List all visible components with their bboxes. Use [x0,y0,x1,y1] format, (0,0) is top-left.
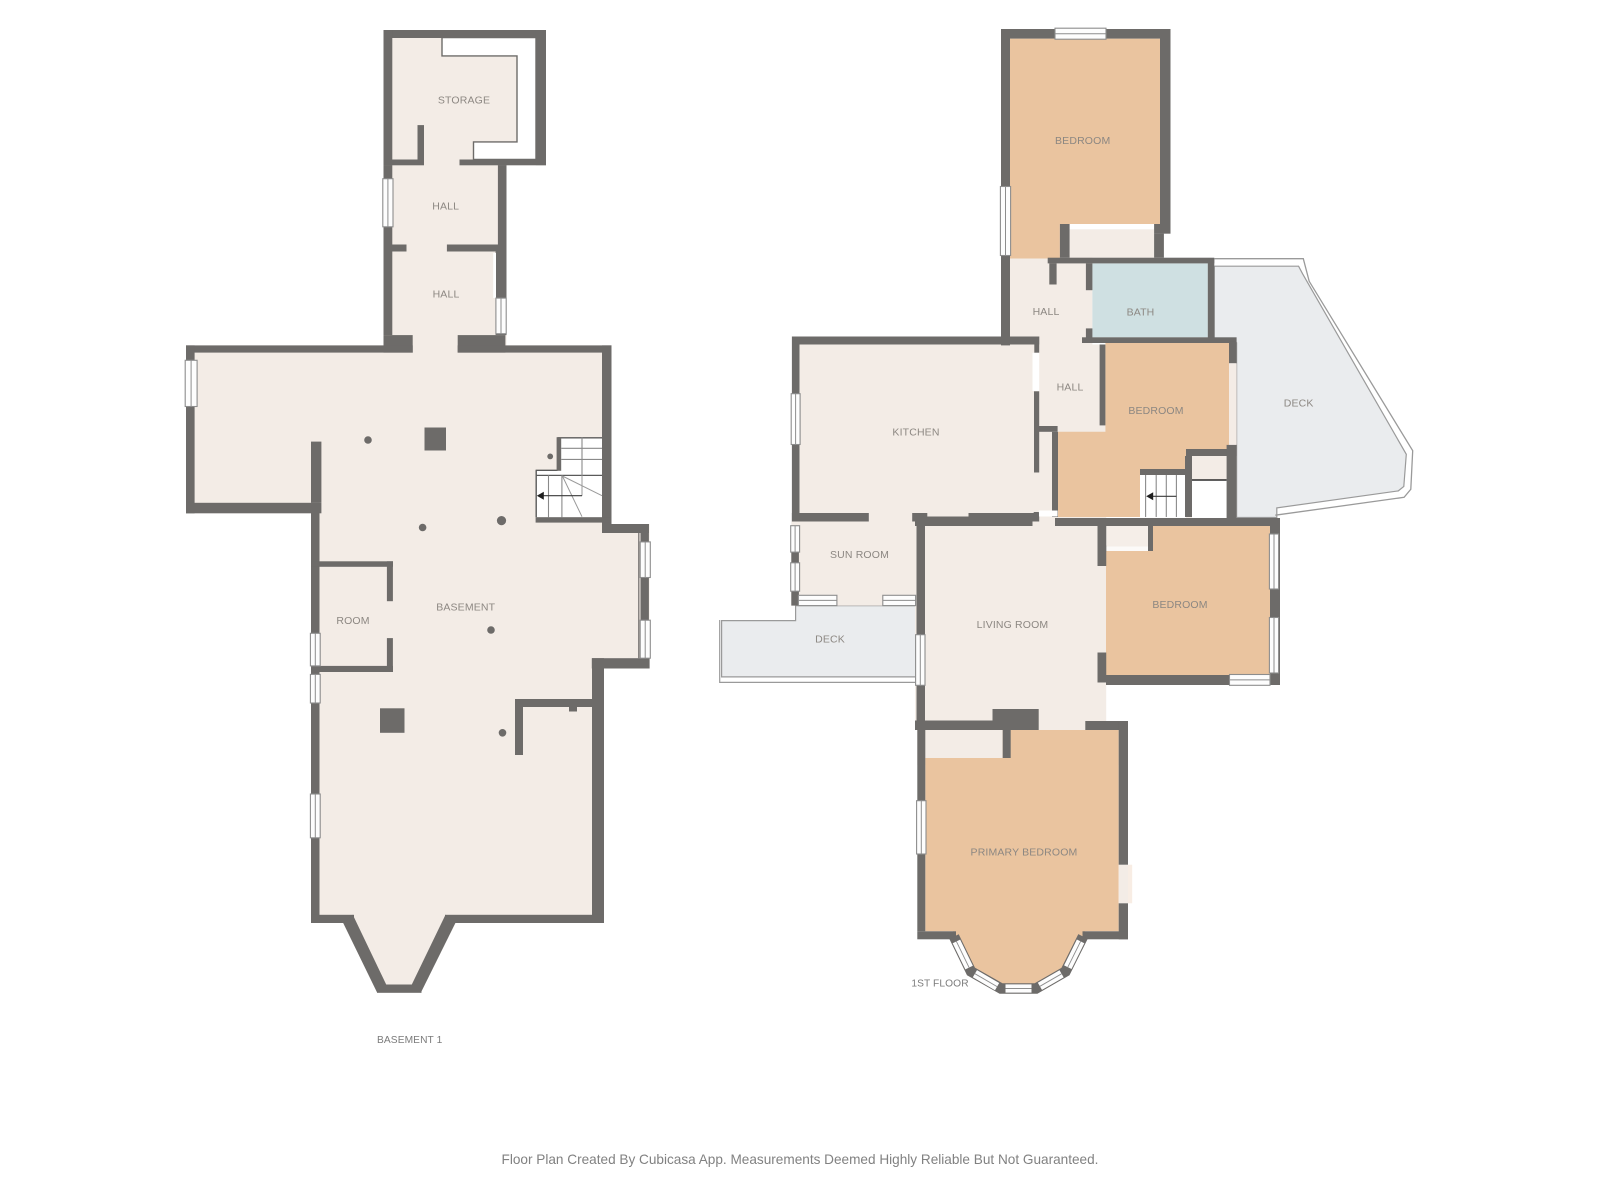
svg-text:KITCHEN: KITCHEN [892,427,939,439]
svg-text:BASEMENT: BASEMENT [436,602,495,614]
svg-text:BEDROOM: BEDROOM [1055,135,1110,147]
svg-text:PRIMARY BEDROOM: PRIMARY BEDROOM [971,846,1078,858]
svg-text:Floor Plan Created By Cubicasa: Floor Plan Created By Cubicasa App. Meas… [502,1152,1099,1167]
svg-text:LIVING ROOM: LIVING ROOM [977,619,1049,631]
svg-text:HALL: HALL [433,289,460,301]
svg-text:DECK: DECK [815,634,845,646]
svg-text:BEDROOM: BEDROOM [1128,405,1183,417]
svg-text:1ST FLOOR: 1ST FLOOR [911,979,968,990]
svg-text:DECK: DECK [1284,398,1314,410]
svg-text:HALL: HALL [1057,382,1084,394]
svg-text:BEDROOM: BEDROOM [1152,599,1207,611]
svg-text:BASEMENT 1: BASEMENT 1 [377,1035,443,1046]
svg-text:HALL: HALL [1033,306,1060,318]
svg-text:SUN ROOM: SUN ROOM [830,549,889,561]
svg-text:STORAGE: STORAGE [438,95,490,107]
svg-text:BATH: BATH [1127,307,1155,319]
svg-text:ROOM: ROOM [336,615,369,627]
svg-text:HALL: HALL [432,201,459,213]
